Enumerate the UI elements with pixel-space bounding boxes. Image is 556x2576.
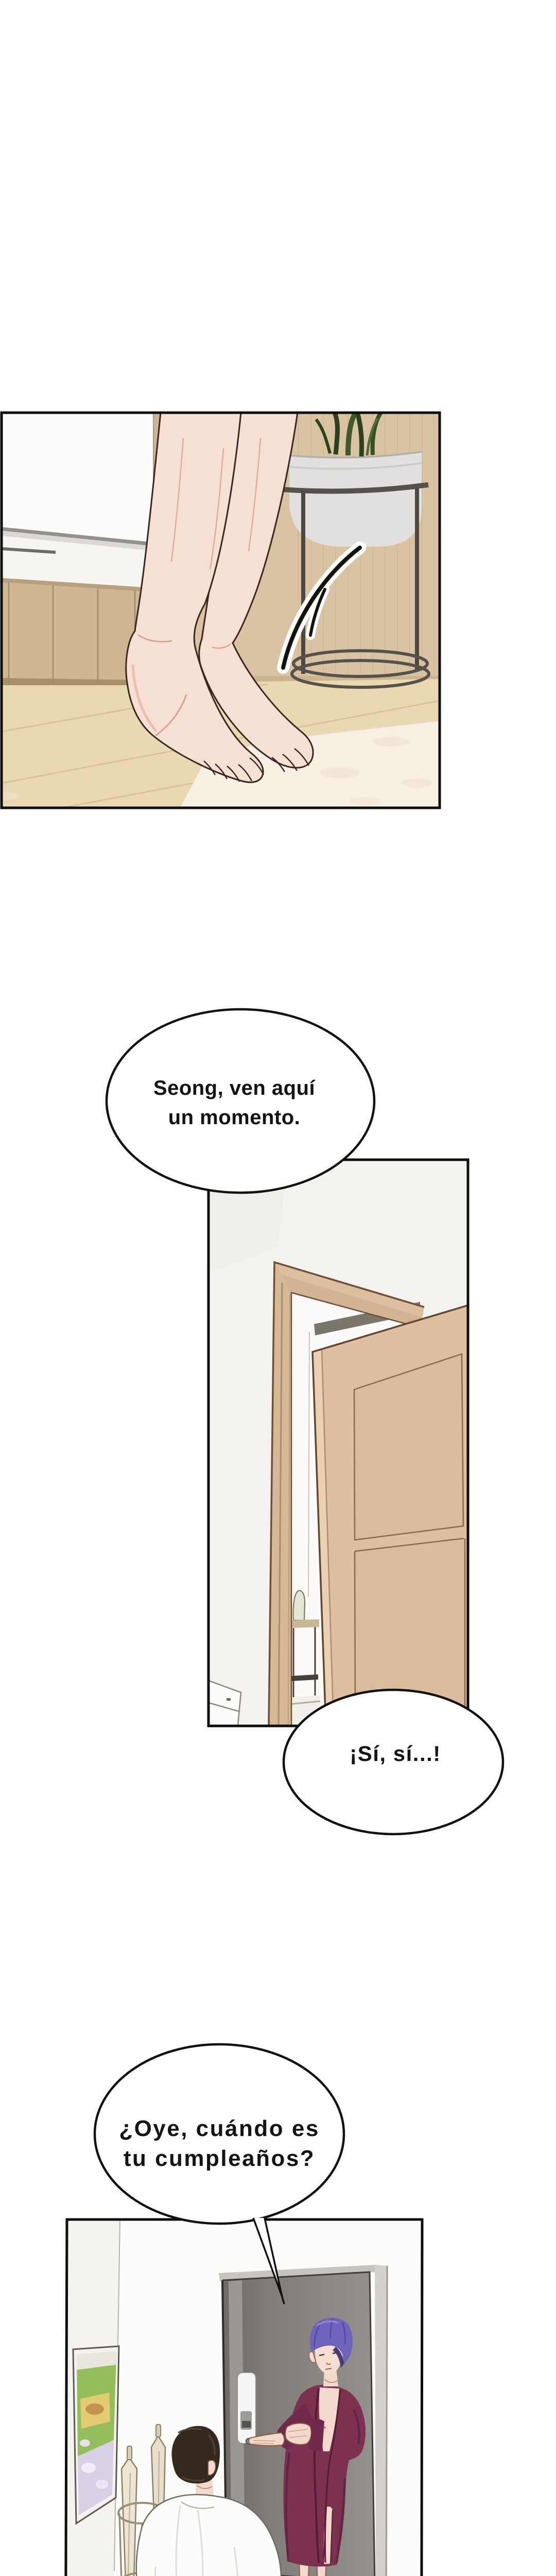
svg-text:¡Sí, sí...!: ¡Sí, sí...! [350,1741,441,1766]
svg-text:¿Oye, cuándo es: ¿Oye, cuándo es [119,2116,320,2141]
svg-text:un momento.: un momento. [168,1106,301,1129]
svg-text:tu cumpleaños?: tu cumpleaños? [124,2146,315,2171]
svg-text:Seong, ven aquí: Seong, ven aquí [153,1077,316,1099]
